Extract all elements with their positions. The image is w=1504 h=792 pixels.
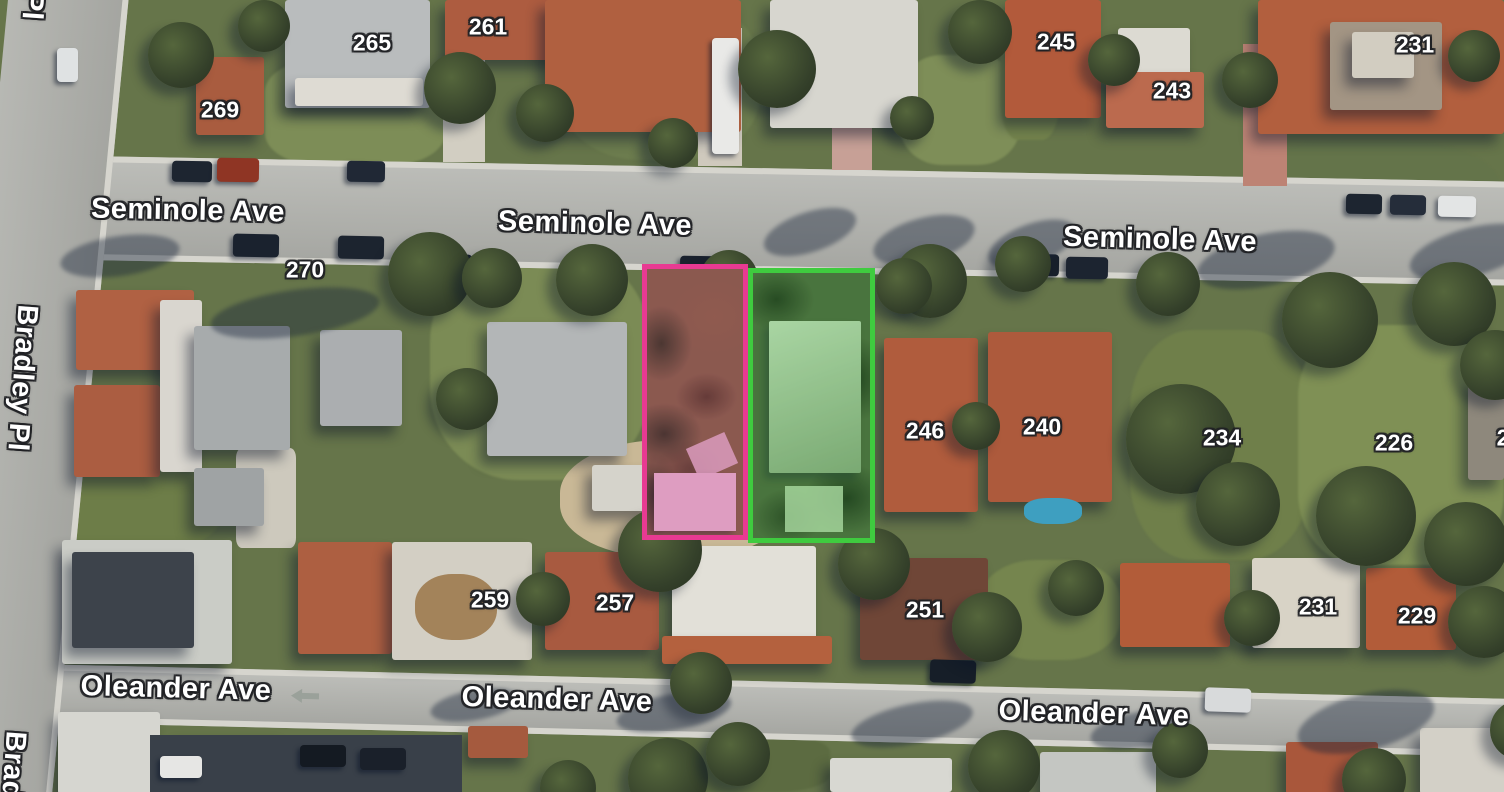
house-roof	[1040, 752, 1156, 792]
house-roof	[298, 542, 392, 654]
street-label-seminole-ave-3: Seminole Ave	[1063, 221, 1258, 259]
street-label-oleander-ave-3: Oleander Ave	[998, 695, 1190, 734]
highlighted-parcel-pink[interactable]	[642, 264, 748, 540]
street-label-bradley-pl-partial-top: Pl	[15, 0, 50, 21]
swimming-pool	[1024, 498, 1082, 524]
car	[1066, 257, 1108, 280]
house-number-231-north: 231	[1396, 32, 1434, 59]
tree	[995, 236, 1051, 292]
highlighted-parcel-green[interactable]	[748, 268, 875, 543]
car	[1438, 196, 1476, 218]
car	[172, 161, 212, 183]
tree	[462, 248, 522, 308]
street-label-seminole-ave-2: Seminole Ave	[498, 205, 693, 243]
car	[930, 659, 977, 684]
house-number-partial-right-edge: 2	[1497, 425, 1504, 452]
tree	[388, 232, 472, 316]
house-number-269: 269	[201, 97, 239, 124]
house-number-261: 261	[469, 14, 507, 41]
house-number-234: 234	[1203, 425, 1241, 452]
house-number-265: 265	[353, 30, 391, 57]
house-roof	[1120, 563, 1230, 647]
tree	[516, 84, 574, 142]
house-roof	[72, 552, 194, 648]
car	[1390, 195, 1426, 216]
tree	[1222, 52, 1278, 108]
satellite-map[interactable]: Seminole Ave Seminole Ave Seminole Ave O…	[0, 0, 1504, 792]
street-label-bradley-pl-partial-bottom: Brad	[0, 730, 32, 792]
car	[57, 48, 78, 82]
tree	[1048, 560, 1104, 616]
car	[360, 748, 406, 770]
tree	[556, 244, 628, 316]
tree	[968, 730, 1040, 792]
tree	[1424, 502, 1504, 586]
car	[347, 161, 385, 183]
tree	[952, 592, 1022, 662]
house-roof	[295, 78, 423, 106]
tree	[1448, 586, 1504, 658]
tree	[890, 96, 934, 140]
house-roof	[1005, 0, 1101, 118]
tree	[648, 118, 698, 168]
tree	[424, 52, 496, 124]
house-roof	[830, 758, 952, 792]
house-roof	[320, 330, 402, 426]
tree	[1282, 272, 1378, 368]
tree	[436, 368, 498, 430]
house-number-251: 251	[906, 597, 944, 624]
street-label-oleander-ave-2: Oleander Ave	[461, 681, 653, 719]
tree	[148, 22, 214, 88]
car	[233, 234, 279, 258]
tree	[948, 0, 1012, 64]
house-roof	[58, 712, 160, 792]
car	[712, 38, 739, 154]
house-number-270: 270	[286, 257, 324, 284]
house-number-245: 245	[1037, 29, 1075, 56]
car	[300, 745, 346, 767]
tree	[1196, 462, 1280, 546]
car	[1346, 194, 1382, 215]
house-number-226: 226	[1375, 430, 1413, 457]
tree	[670, 652, 732, 714]
green-parcel-tint	[753, 273, 870, 538]
tree	[516, 572, 570, 626]
tree	[1316, 466, 1416, 566]
car	[217, 158, 259, 183]
tree	[1448, 30, 1500, 82]
house-number-246: 246	[906, 418, 944, 445]
house-roof	[194, 326, 290, 450]
house-number-259: 259	[471, 587, 509, 614]
tree	[706, 722, 770, 786]
one-way-left-arrow-icon	[291, 689, 321, 704]
tree	[1224, 590, 1280, 646]
pink-parcel-tint	[647, 269, 743, 535]
house-number-243: 243	[1153, 78, 1191, 105]
house-number-231-south: 231	[1299, 594, 1337, 621]
house-roof	[74, 385, 160, 477]
car	[160, 756, 202, 778]
tree	[876, 258, 932, 314]
tree	[952, 402, 1000, 450]
house-roof	[487, 322, 627, 456]
house-number-257: 257	[596, 590, 634, 617]
car	[338, 236, 384, 260]
house-roof	[468, 726, 528, 758]
house-roof	[194, 468, 264, 526]
tree	[540, 760, 596, 792]
house-number-229: 229	[1398, 603, 1436, 630]
tree	[1088, 34, 1140, 86]
tree	[238, 0, 290, 52]
tree	[738, 30, 816, 108]
tree	[1136, 252, 1200, 316]
street-label-oleander-ave-1: Oleander Ave	[80, 670, 272, 708]
car	[1205, 687, 1252, 713]
house-number-240: 240	[1023, 414, 1061, 441]
street-label-seminole-ave-1: Seminole Ave	[91, 192, 286, 229]
